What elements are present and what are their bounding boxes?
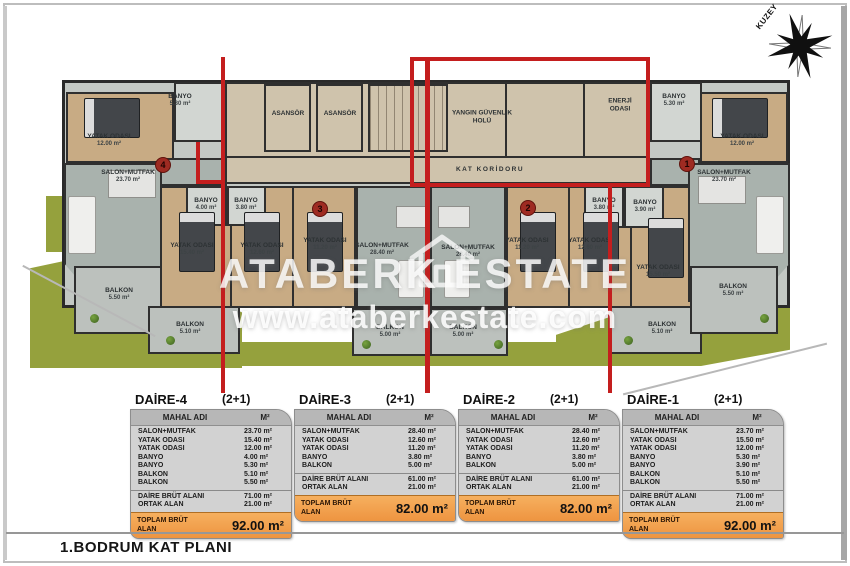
table-box: MAHAL ADI M² SALON+MUTFAK23.70 m² YATAK … [130, 409, 292, 539]
unit-badge-4: 4 [155, 157, 171, 173]
label-bedroom-unit1: YATAK ODASI15.50 m² [636, 264, 679, 280]
balcony-unit1-a [690, 266, 778, 334]
room-name: BALKON [176, 321, 204, 328]
room-name: YATAK ODASI [170, 242, 213, 249]
col-area-header: M² [731, 413, 783, 422]
table-summary: DAİRE BRÜT ALANI61.00 m² ORTAK ALAN21.00… [459, 473, 619, 495]
room-name: YATAK ODASI [240, 242, 283, 249]
table-rows: SALON+MUTFAK23.70 m² YATAK ODASI15.40 m²… [131, 426, 291, 490]
fire-line-2 [425, 57, 430, 393]
row-label: BANYO [459, 454, 567, 463]
room-area: 5.10 m² [176, 329, 204, 337]
table-summary: DAİRE BRÜT ALANI61.00 m² ORTAK ALAN21.00… [295, 473, 455, 495]
label-bedroom-tl: YATAK ODASI12.00 m² [87, 133, 130, 149]
row-value: 15.40 m² [239, 437, 291, 446]
col-room-header: MAHAL ADI [459, 413, 567, 422]
room-area: 15.50 m² [636, 272, 679, 280]
sheet-edge-left [3, 6, 7, 560]
table-row: BALKON5.10 m² [623, 471, 783, 480]
fire-line-1-horiz [196, 180, 225, 184]
row-value: 28.40 m² [403, 428, 455, 437]
table-title: DAİRE-1 (2+1) [622, 392, 784, 406]
table-row: YATAK ODASI12.60 m² [295, 437, 455, 446]
plant [494, 340, 503, 349]
label-balcony-unit4-a: BALKON5.50 m² [105, 287, 133, 303]
unit-badge-2: 2 [520, 200, 536, 216]
label-bedroom-tr: YATAK ODASI12.00 m² [720, 133, 763, 149]
table-row: YATAK ODASI12.60 m² [459, 437, 619, 446]
col-room-header: MAHAL ADI [623, 413, 731, 422]
table-header: MAHAL ADI M² [623, 410, 783, 426]
label-living-unit4: SALON+MUTFAK23.70 m² [101, 169, 155, 185]
row-label: SALON+MUTFAK [295, 428, 403, 437]
row-value: 11.20 m² [567, 445, 619, 454]
summary-row: ORTAK ALAN21.00 m² [131, 501, 291, 510]
room-area: 5.50 m² [719, 291, 747, 299]
table-row: SALON+MUTFAK28.40 m² [459, 428, 619, 437]
row-value: 3.80 m² [403, 454, 455, 463]
plant [362, 340, 371, 349]
table-daire-4: DAİRE-4 (2+1) MAHAL ADI M² SALON+MUTFAK2… [130, 392, 292, 539]
row-value: 61.00 m² [403, 476, 455, 485]
room-name: ASANSÖR [272, 110, 305, 117]
row-value: 5.00 m² [403, 462, 455, 471]
room-name: SALON+MUTFAK [355, 242, 409, 249]
table-row: SALON+MUTFAK23.70 m² [623, 428, 783, 437]
fire-line-1-jog [196, 142, 200, 184]
room-name: YATAK ODASI [303, 237, 346, 244]
plant [166, 336, 175, 345]
row-label: BALKON [131, 471, 239, 480]
table-total: TOPLAM BRÜT ALAN 82.00 m² [459, 495, 619, 521]
room-area: 5.10 m² [648, 329, 676, 337]
row-label: DAİRE BRÜT ALANI [131, 493, 239, 502]
table-daire-2: DAİRE-2 (2+1) MAHAL ADI M² SALON+MUTFAK2… [458, 392, 620, 522]
row-label: BALKON [459, 462, 567, 471]
room-name: BALKON [648, 321, 676, 328]
room-name: YATAK ODASI [505, 237, 548, 244]
row-label: BANYO [623, 462, 731, 471]
table-row: BANYO3.80 m² [295, 454, 455, 463]
room-area: 5.30 m² [662, 101, 685, 109]
apartment-type: (2+1) [550, 392, 578, 406]
label-balcony-unit1-b: BALKON5.10 m² [648, 321, 676, 337]
label-elevator-2: ASANSÖR [324, 110, 357, 118]
row-value: 4.00 m² [239, 454, 291, 463]
summary-row: ORTAK ALAN21.00 m² [623, 501, 783, 510]
room-area: 5.50 m² [105, 295, 133, 303]
table-row: BANYO3.80 m² [459, 454, 619, 463]
room-area: 12.00 m² [87, 141, 130, 149]
room-area: 4.00 m² [194, 205, 217, 213]
label-living-unit1: SALON+MUTFAK23.70 m² [697, 169, 751, 185]
row-label: SALON+MUTFAK [131, 428, 239, 437]
total-label: TOPLAM BRÜT ALAN [295, 499, 365, 517]
plant [90, 314, 99, 323]
row-value: 5.10 m² [239, 471, 291, 480]
row-value: 11.20 m² [403, 445, 455, 454]
row-label: YATAK ODASI [623, 437, 731, 446]
room-name: SALON+MUTFAK [101, 169, 155, 176]
row-value: 23.70 m² [239, 428, 291, 437]
row-label: BALKON [131, 479, 239, 488]
label-bathroom-unit1: BANYO3.90 m² [633, 199, 656, 215]
row-label: SALON+MUTFAK [623, 428, 731, 437]
row-value: 21.00 m² [403, 484, 455, 493]
table-row: BANYO3.90 m² [623, 462, 783, 471]
fire-zone-outline [410, 57, 650, 187]
plant [624, 336, 633, 345]
row-value: 61.00 m² [567, 476, 619, 485]
bathroom-top-left [174, 82, 227, 142]
total-value: 92.00 m² [201, 518, 291, 533]
row-label: ORTAK ALAN [623, 501, 731, 510]
row-value: 3.90 m² [731, 462, 783, 471]
room-area: 15.40 m² [170, 250, 213, 258]
compass-rose-icon [742, 0, 846, 86]
summary-row: DAİRE BRÜT ALANI61.00 m² [295, 476, 455, 485]
watermark-url: www.ataberkestate.com [233, 299, 617, 336]
table-row: BANYO5.30 m² [131, 462, 291, 471]
apartment-type: (2+1) [714, 392, 742, 406]
table-box: MAHAL ADI M² SALON+MUTFAK28.40 m² YATAK … [458, 409, 620, 522]
row-label: BALKON [623, 471, 731, 480]
room-name: BALKON [719, 283, 747, 290]
room-name: ASANSÖR [324, 110, 357, 117]
table-row: BALKON5.00 m² [295, 462, 455, 471]
table-title: DAİRE-4 (2+1) [130, 392, 292, 406]
sofa [756, 196, 784, 254]
sheet-edge-right [841, 6, 847, 560]
table-row: SALON+MUTFAK28.40 m² [295, 428, 455, 437]
label-balcony-unit4-b: BALKON5.10 m² [176, 321, 204, 337]
total-value: 82.00 m² [529, 501, 619, 516]
table-row: YATAK ODASI11.20 m² [295, 445, 455, 454]
apartment-name: DAİRE-1 [627, 392, 679, 407]
apartment-type: (2+1) [222, 392, 250, 406]
row-label: DAİRE BRÜT ALANI [459, 476, 567, 485]
dining-table [438, 206, 470, 228]
row-label: YATAK ODASI [295, 445, 403, 454]
table-daire-1: DAİRE-1 (2+1) MAHAL ADI M² SALON+MUTFAK2… [622, 392, 784, 539]
row-value: 5.30 m² [239, 462, 291, 471]
row-label: BANYO [623, 454, 731, 463]
room-name: YATAK ODASI [87, 133, 130, 140]
room-area: 23.70 m² [101, 177, 155, 185]
row-label: ORTAK ALAN [295, 484, 403, 493]
col-area-header: M² [239, 413, 291, 422]
bathroom-top-right [650, 82, 702, 142]
row-value: 71.00 m² [239, 493, 291, 502]
col-room-header: MAHAL ADI [131, 413, 239, 422]
label-bedroom-unit4: YATAK ODASI15.40 m² [170, 242, 213, 258]
floor-plan-sheet: { "page": { "floor_title": "1.BODRUM KAT… [0, 0, 850, 566]
table-rows: SALON+MUTFAK23.70 m² YATAK ODASI15.50 m²… [623, 426, 783, 490]
room-name: SALON+MUTFAK [697, 169, 751, 176]
row-value: 21.00 m² [731, 501, 783, 510]
row-value: 3.80 m² [567, 454, 619, 463]
row-label: BANYO [131, 462, 239, 471]
label-bathroom-tl: BANYO5.30 m² [168, 93, 191, 109]
row-label: DAİRE BRÜT ALANI [295, 476, 403, 485]
col-room-header: MAHAL ADI [295, 413, 403, 422]
row-value: 21.00 m² [567, 484, 619, 493]
room-name: BANYO [168, 93, 191, 100]
apartment-name: DAİRE-3 [299, 392, 351, 407]
total-value: 82.00 m² [365, 501, 455, 516]
table-header: MAHAL ADI M² [131, 410, 291, 426]
row-value: 12.60 m² [567, 437, 619, 446]
table-row: BALKON5.00 m² [459, 462, 619, 471]
label-bathroom-tr: BANYO5.30 m² [662, 93, 685, 109]
row-value: 23.70 m² [731, 428, 783, 437]
room-name: YATAK ODASI [636, 264, 679, 271]
summary-row: DAİRE BRÜT ALANI61.00 m² [459, 476, 619, 485]
table-header: MAHAL ADI M² [295, 410, 455, 426]
fire-line-1 [221, 57, 225, 393]
label-bathroom-unit2: BANYO3.80 m² [592, 197, 615, 213]
plant [760, 314, 769, 323]
row-label: YATAK ODASI [131, 445, 239, 454]
summary-row: DAİRE BRÜT ALANI71.00 m² [131, 493, 291, 502]
row-value: 28.40 m² [567, 428, 619, 437]
table-box: MAHAL ADI M² SALON+MUTFAK23.70 m² YATAK … [622, 409, 784, 539]
room-name: BANYO [592, 197, 615, 204]
col-area-header: M² [403, 413, 455, 422]
apartment-name: DAİRE-4 [135, 392, 187, 407]
room-area: 3.90 m² [633, 207, 656, 215]
row-label: ORTAK ALAN [131, 501, 239, 510]
label-elevator-1: ASANSÖR [272, 110, 305, 118]
table-total: TOPLAM BRÜT ALAN 82.00 m² [295, 495, 455, 521]
table-row: YATAK ODASI11.20 m² [459, 445, 619, 454]
table-header: MAHAL ADI M² [459, 410, 619, 426]
row-value: 12.00 m² [239, 445, 291, 454]
table-row: YATAK ODASI15.40 m² [131, 437, 291, 446]
room-area: 3.80 m² [234, 205, 257, 213]
table-rows: SALON+MUTFAK28.40 m² YATAK ODASI12.60 m²… [295, 426, 455, 473]
table-row: BALKON5.10 m² [131, 471, 291, 480]
summary-row: DAİRE BRÜT ALANI71.00 m² [623, 493, 783, 502]
total-label: TOPLAM BRÜT ALAN [459, 499, 529, 517]
summary-row: ORTAK ALAN21.00 m² [459, 484, 619, 493]
label-bathroom-unit4: BANYO4.00 m² [194, 197, 217, 213]
row-value: 5.50 m² [239, 479, 291, 488]
row-value: 5.50 m² [731, 479, 783, 488]
room-name: BANYO [662, 93, 685, 100]
room-name: BANYO [234, 197, 257, 204]
sofa [68, 196, 96, 254]
room-area: 12.00 m² [720, 141, 763, 149]
apartment-type: (2+1) [386, 392, 414, 406]
watermark-brand: ATABERK ESTATE [219, 250, 631, 298]
table-row: YATAK ODASI12.00 m² [623, 445, 783, 454]
table-summary: DAİRE BRÜT ALANI71.00 m² ORTAK ALAN21.00… [623, 490, 783, 512]
table-row: SALON+MUTFAK23.70 m² [131, 428, 291, 437]
table-daire-3: DAİRE-3 (2+1) MAHAL ADI M² SALON+MUTFAK2… [294, 392, 456, 522]
room-area: 5.30 m² [168, 101, 191, 109]
row-label: BANYO [295, 454, 403, 463]
table-rows: SALON+MUTFAK28.40 m² YATAK ODASI12.60 m²… [459, 426, 619, 473]
table-row: BANYO5.30 m² [623, 454, 783, 463]
table-title: DAİRE-2 (2+1) [458, 392, 620, 406]
room-name: BANYO [633, 199, 656, 206]
table-row: BANYO4.00 m² [131, 454, 291, 463]
room-name: YATAK ODASI [720, 133, 763, 140]
col-area-header: M² [567, 413, 619, 422]
row-label: BALKON [295, 462, 403, 471]
room-name: YATAK ODASI [568, 237, 611, 244]
row-value: 21.00 m² [239, 501, 291, 510]
table-summary: DAİRE BRÜT ALANI71.00 m² ORTAK ALAN21.00… [131, 490, 291, 512]
room-area: 23.70 m² [697, 177, 751, 185]
row-value: 71.00 m² [731, 493, 783, 502]
row-label: DAİRE BRÜT ALANI [623, 493, 731, 502]
room-area: 3.80 m² [592, 205, 615, 213]
row-label: YATAK ODASI [459, 437, 567, 446]
row-value: 5.30 m² [731, 454, 783, 463]
table-row: BALKON5.50 m² [131, 479, 291, 488]
table-box: MAHAL ADI M² SALON+MUTFAK28.40 m² YATAK … [294, 409, 456, 522]
room-name: BALKON [105, 287, 133, 294]
table-row: BALKON5.50 m² [623, 479, 783, 488]
row-label: YATAK ODASI [623, 445, 731, 454]
row-value: 15.50 m² [731, 437, 783, 446]
row-label: SALON+MUTFAK [459, 428, 567, 437]
label-bathroom-unit3: BANYO3.80 m² [234, 197, 257, 213]
table-title: DAİRE-3 (2+1) [294, 392, 456, 406]
row-label: YATAK ODASI [295, 437, 403, 446]
total-value: 92.00 m² [693, 518, 783, 533]
row-value: 5.10 m² [731, 471, 783, 480]
title-separator-line [6, 532, 844, 534]
unit-badge-1: 1 [679, 156, 695, 172]
apartment-name: DAİRE-2 [463, 392, 515, 407]
table-row: YATAK ODASI15.50 m² [623, 437, 783, 446]
summary-row: ORTAK ALAN21.00 m² [295, 484, 455, 493]
label-balcony-unit1-a: BALKON5.50 m² [719, 283, 747, 299]
floor-plan-title: 1.BODRUM KAT PLANI [60, 539, 232, 556]
row-value: 12.00 m² [731, 445, 783, 454]
unit-badge-3: 3 [312, 201, 328, 217]
row-value: 12.60 m² [403, 437, 455, 446]
row-label: BALKON [623, 479, 731, 488]
row-label: BANYO [131, 454, 239, 463]
row-label: ORTAK ALAN [459, 484, 567, 493]
row-label: YATAK ODASI [131, 437, 239, 446]
room-name: BANYO [194, 197, 217, 204]
dining-table [396, 206, 428, 228]
table-row: YATAK ODASI12.00 m² [131, 445, 291, 454]
row-label: YATAK ODASI [459, 445, 567, 454]
row-value: 5.00 m² [567, 462, 619, 471]
